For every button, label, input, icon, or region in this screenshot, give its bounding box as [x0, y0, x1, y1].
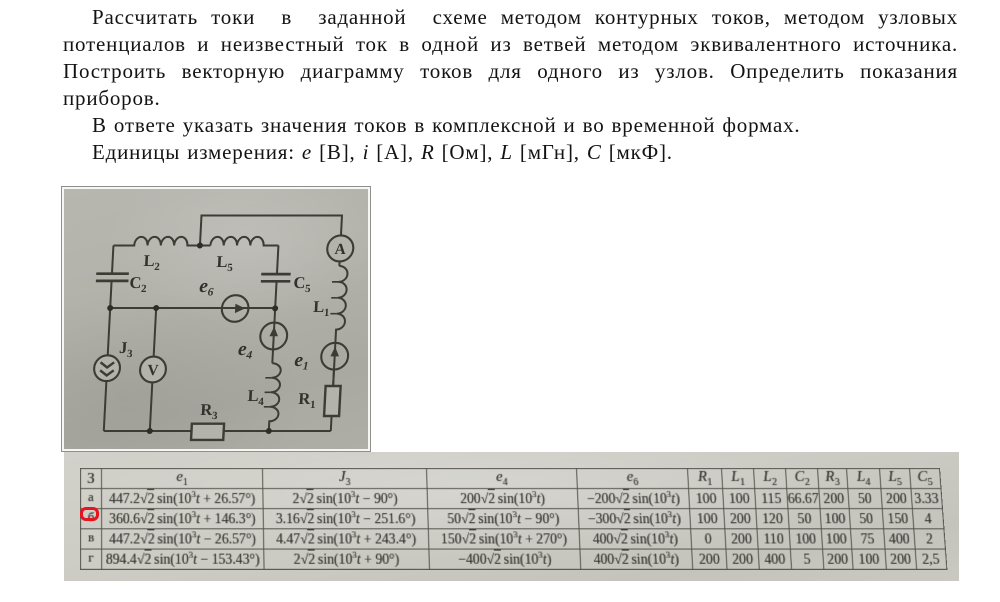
svg-text:L1: L1	[313, 297, 331, 319]
svg-text:L4: L4	[247, 386, 265, 408]
svg-text:L2: L2	[143, 251, 161, 273]
svg-text:C2: C2	[129, 273, 148, 295]
svg-text:L5: L5	[216, 252, 234, 274]
svg-text:R1: R1	[298, 389, 317, 411]
svg-text:C5: C5	[293, 273, 312, 295]
svg-text:e6: e6	[199, 276, 215, 299]
svg-text:e1: e1	[294, 350, 310, 373]
svg-text:J3: J3	[118, 338, 133, 360]
svg-text:e4: e4	[237, 339, 253, 362]
svg-text:R3: R3	[200, 400, 219, 422]
svg-text:V: V	[147, 362, 160, 379]
svg-text:A: A	[334, 241, 347, 258]
